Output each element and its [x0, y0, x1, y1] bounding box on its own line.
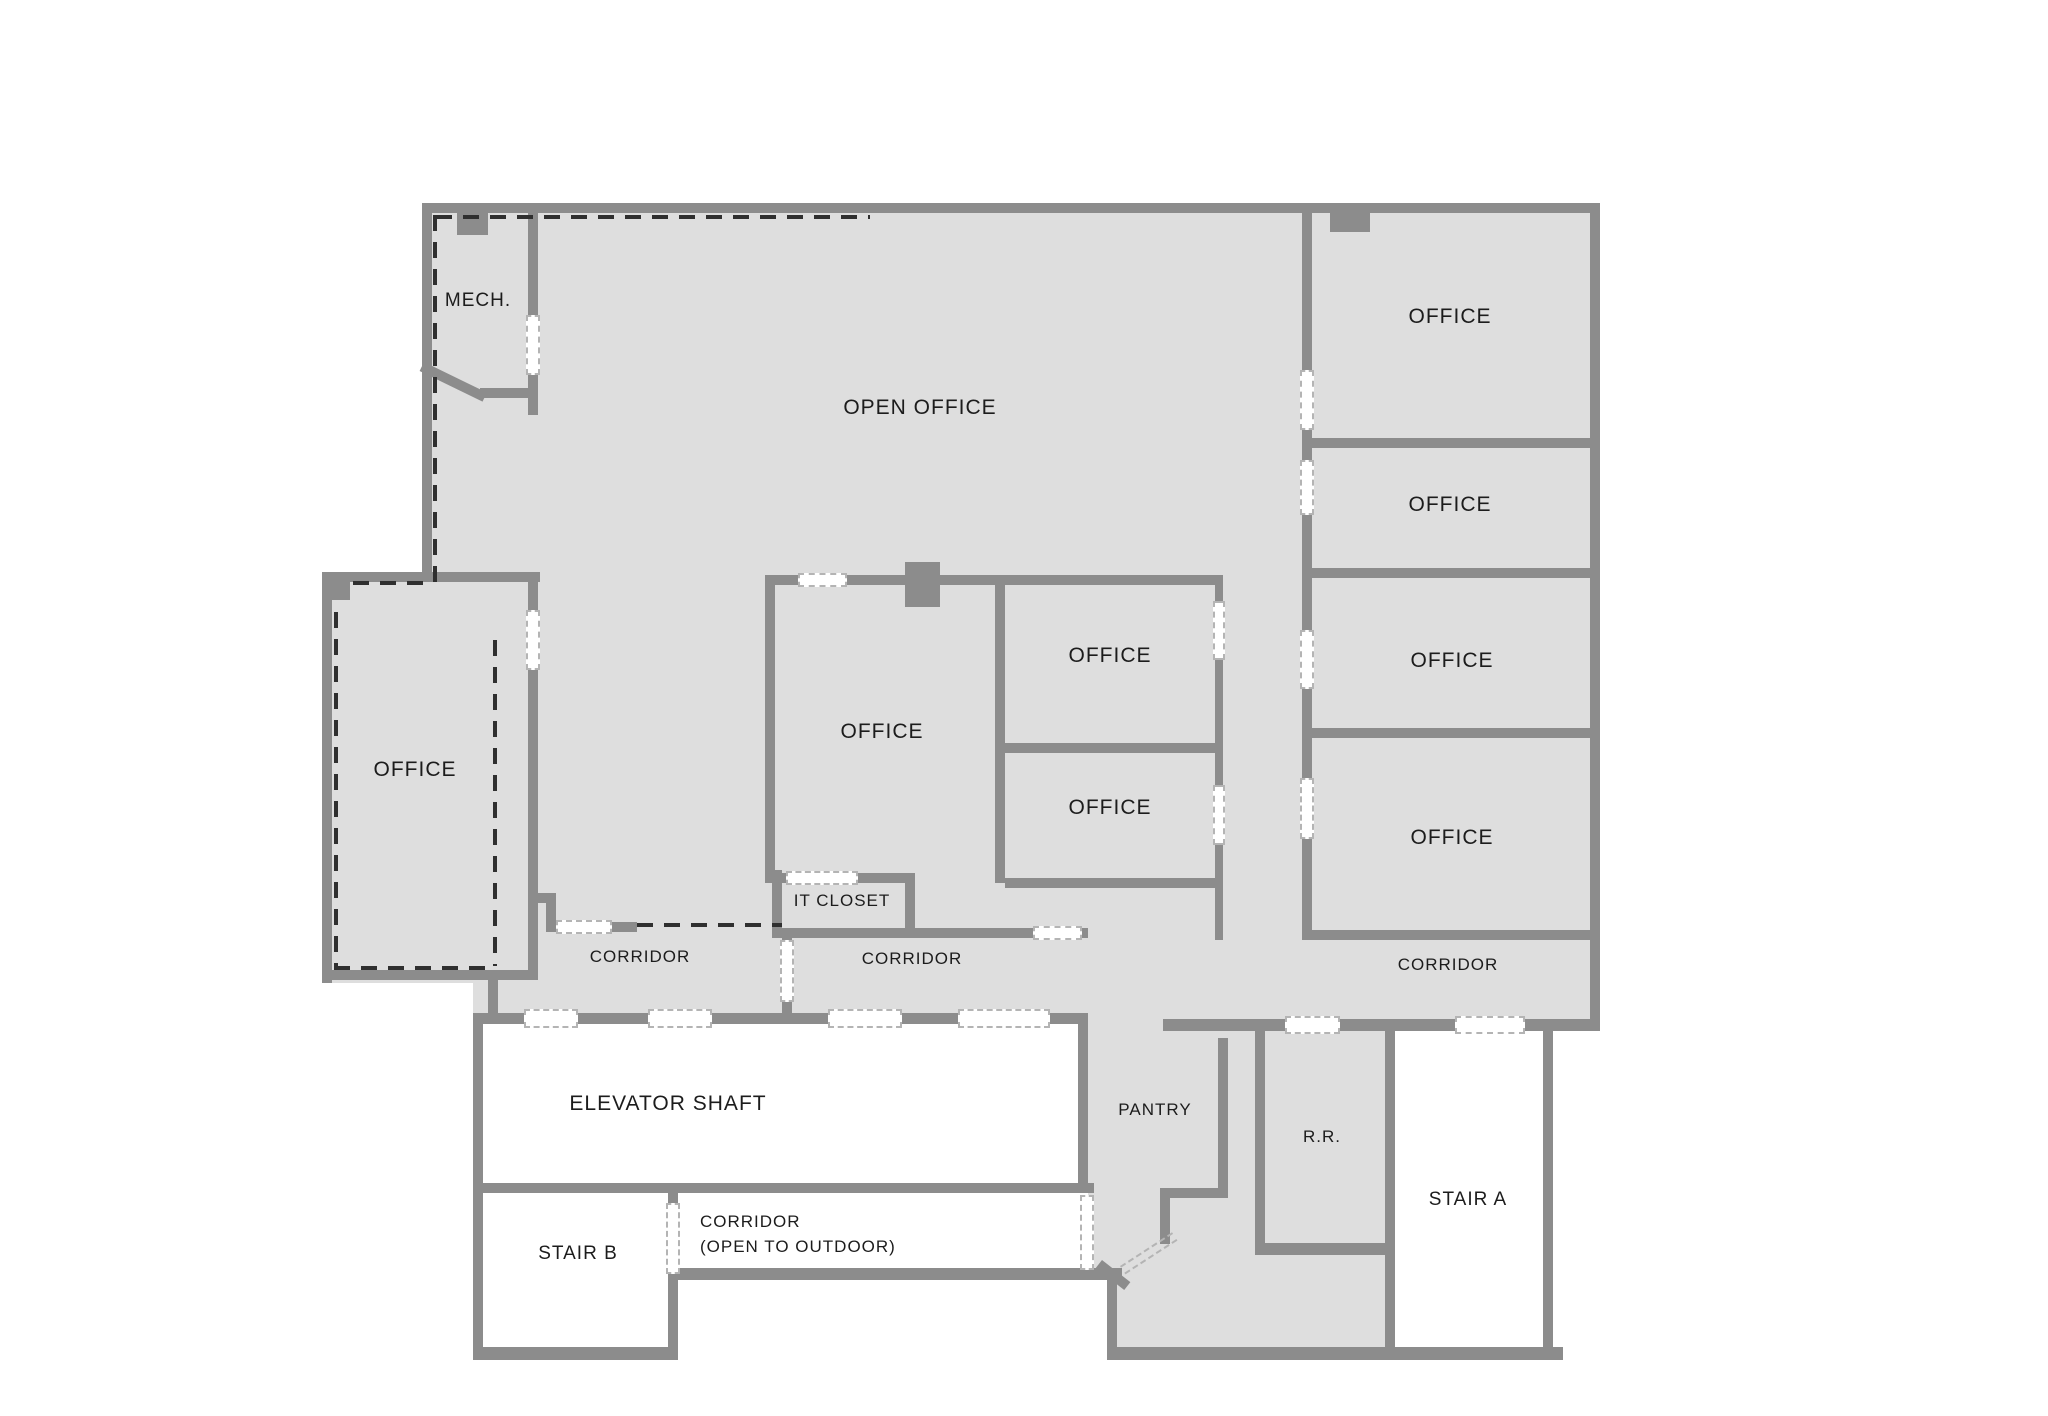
room-label-pantry: PANTRY: [1118, 1100, 1191, 1120]
wall: [1215, 658, 1223, 787]
wall: [1312, 438, 1590, 448]
wall: [488, 980, 498, 1013]
wall: [668, 1272, 678, 1360]
door-opening: [666, 1203, 680, 1274]
wall: [1302, 687, 1312, 780]
wall: [1385, 1030, 1395, 1360]
wall: [1005, 575, 1223, 585]
door-opening: [1285, 1016, 1340, 1034]
door-opening: [786, 871, 858, 885]
wall: [1215, 843, 1223, 940]
room-label-office-right-4: OFFICE: [1411, 826, 1494, 850]
door-opening: [1300, 630, 1314, 689]
wall: [1050, 1013, 1088, 1024]
wall: [1312, 728, 1590, 738]
wall: [995, 575, 1005, 883]
door-opening: [1080, 1195, 1094, 1270]
wall: [856, 873, 915, 883]
room-label-corridor-center: CORRIDOR: [862, 949, 963, 969]
wall: [422, 203, 432, 582]
room-label-elevator-shaft: ELEVATOR SHAFT: [569, 1092, 766, 1116]
wall: [1255, 1031, 1265, 1255]
service-room-floor: [1088, 1280, 1107, 1360]
door-opening: [1455, 1016, 1525, 1034]
wall: [1302, 213, 1312, 372]
wall: [1312, 568, 1590, 578]
wall: [322, 572, 332, 983]
door-opening: [1213, 785, 1225, 845]
wall: [473, 1183, 1094, 1193]
wall: [322, 970, 538, 980]
room-label-corridor-east: CORRIDOR: [1398, 955, 1499, 975]
door-opening: [1300, 778, 1314, 839]
room-label-restroom: R.R.: [1303, 1127, 1341, 1147]
wall: [473, 1013, 483, 1360]
door-opening: [1213, 601, 1225, 660]
wall: [772, 870, 782, 928]
wall: [1302, 930, 1600, 940]
room-label-office-right-1: OFFICE: [1409, 305, 1492, 329]
wall: [765, 575, 775, 883]
demising-dash-line: [353, 581, 428, 585]
wall: [712, 1013, 828, 1024]
wall: [845, 575, 1005, 585]
door-opening: [828, 1009, 902, 1028]
wall: [528, 213, 538, 317]
wall: [473, 1347, 678, 1360]
wall: [1543, 1030, 1553, 1360]
wall: [1005, 878, 1223, 888]
wall: [1218, 1038, 1228, 1198]
wall: [422, 203, 1600, 213]
wall: [1330, 213, 1370, 232]
wall: [546, 903, 556, 932]
room-label-office-small-top: OFFICE: [1069, 644, 1152, 668]
room-label-office-small-bottom: OFFICE: [1069, 796, 1152, 820]
door-opening: [556, 920, 612, 934]
wall: [772, 928, 1035, 938]
wall: [1107, 1347, 1563, 1360]
wall: [578, 1013, 648, 1024]
room-label-corridor-outdoor-line1: CORRIDOR: [700, 1212, 801, 1232]
wall: [1005, 743, 1223, 753]
room-label-stair-b: STAIR B: [538, 1243, 618, 1265]
demising-dash-line: [334, 612, 338, 966]
room-label-office-center: OFFICE: [841, 720, 924, 744]
wall: [528, 582, 538, 612]
floor-plan-canvas: MECH. OPEN OFFICE OFFICE OFFICE OFFICE O…: [0, 0, 2048, 1416]
wall: [528, 668, 538, 980]
door-opening: [798, 573, 847, 587]
room-label-corridor-outdoor-line2: (OPEN TO OUTDOOR): [700, 1237, 896, 1257]
wall: [528, 373, 538, 415]
wall: [612, 922, 637, 932]
room-label-corridor-west: CORRIDOR: [590, 947, 691, 967]
door-opening: [1033, 926, 1082, 940]
door-opening: [1300, 370, 1314, 430]
door-opening: [1300, 460, 1314, 515]
door-opening: [524, 1009, 578, 1028]
room-label-office-left: OFFICE: [374, 758, 457, 782]
room-label-mech: MECH.: [445, 290, 511, 312]
wall: [1255, 1243, 1395, 1255]
wall: [1078, 1023, 1088, 1193]
demising-dash-line: [493, 640, 497, 966]
demising-dash-line: [637, 923, 782, 927]
wall: [1302, 428, 1312, 462]
door-opening: [526, 315, 540, 375]
door-opening: [648, 1009, 712, 1028]
wall: [1302, 837, 1312, 940]
door-opening: [526, 610, 540, 670]
wall: [678, 1268, 1122, 1280]
room-label-stair-a: STAIR A: [1429, 1189, 1507, 1211]
wall: [902, 1013, 958, 1024]
room-label-office-right-3: OFFICE: [1411, 649, 1494, 673]
demising-dash-line: [334, 966, 493, 970]
wall: [473, 1013, 524, 1024]
wall: [1525, 1019, 1600, 1031]
service-room-floor: [483, 1193, 668, 1347]
demising-dash-line: [433, 215, 437, 582]
door-opening: [958, 1009, 1050, 1028]
room-label-office-right-2: OFFICE: [1409, 493, 1492, 517]
room-label-open-office: OPEN OFFICE: [843, 396, 996, 420]
wall: [1590, 203, 1600, 1030]
room-label-it-closet: IT CLOSET: [794, 891, 891, 911]
wall: [1163, 1019, 1285, 1031]
wall: [1340, 1019, 1455, 1031]
floor-slab: [1088, 1030, 1395, 1360]
demising-dash-line: [436, 215, 870, 219]
wall: [1302, 513, 1312, 632]
door-opening: [780, 940, 794, 1002]
